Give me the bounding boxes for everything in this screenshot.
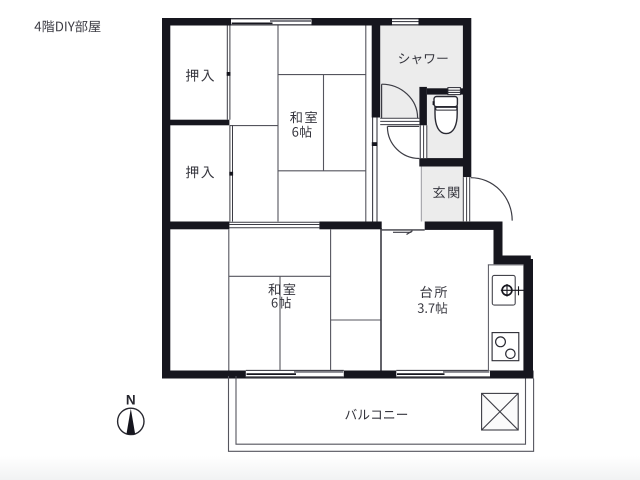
svg-text:N: N	[126, 393, 136, 408]
